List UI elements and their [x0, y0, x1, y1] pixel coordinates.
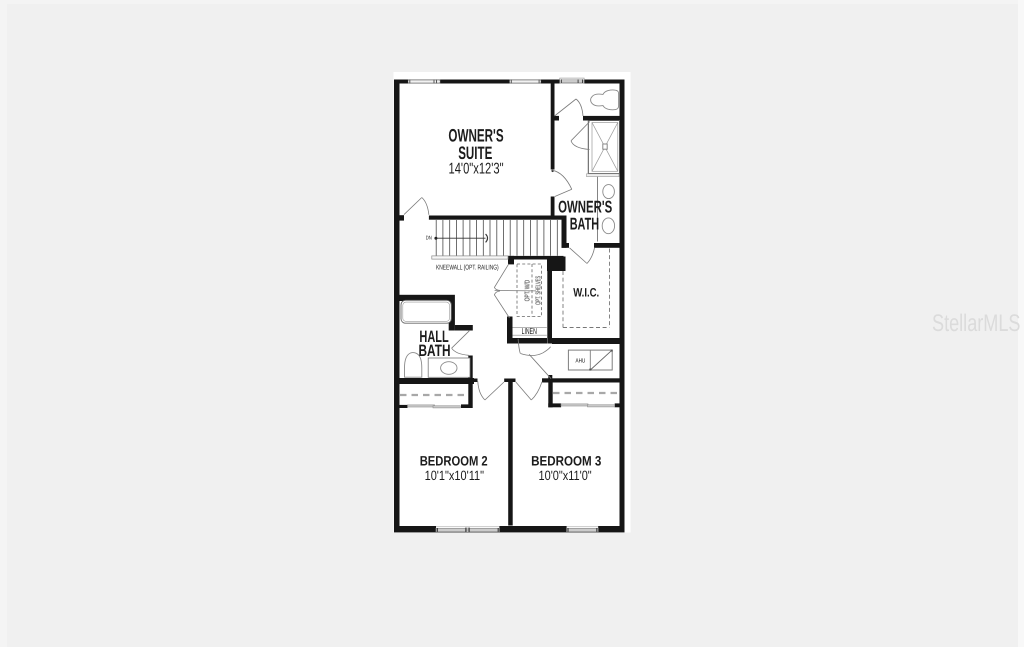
- svg-text:W.I.C.: W.I.C.: [573, 286, 599, 300]
- svg-text:OPT. W/D: OPT. W/D: [523, 280, 531, 302]
- svg-text:KNEEWALL (OPT. RAILING): KNEEWALL (OPT. RAILING): [436, 264, 499, 272]
- svg-text:OPT. SHELVES: OPT. SHELVES: [535, 276, 542, 305]
- svg-text:BATH: BATH: [570, 214, 599, 233]
- svg-text:AHU: AHU: [576, 357, 586, 364]
- svg-text:LINEN: LINEN: [522, 326, 537, 336]
- svg-text:BEDROOM 3: BEDROOM 3: [531, 453, 602, 468]
- svg-text:DN: DN: [426, 236, 432, 242]
- svg-text:StellarMLS: StellarMLS: [932, 310, 1021, 337]
- svg-text:BATH: BATH: [419, 342, 451, 360]
- svg-text:14'0"x12'3": 14'0"x12'3": [449, 161, 504, 178]
- svg-text:10'1"x10'11": 10'1"x10'11": [425, 468, 485, 483]
- svg-text:BEDROOM 2: BEDROOM 2: [420, 453, 488, 468]
- svg-text:10'0"x11'0": 10'0"x11'0": [539, 468, 592, 483]
